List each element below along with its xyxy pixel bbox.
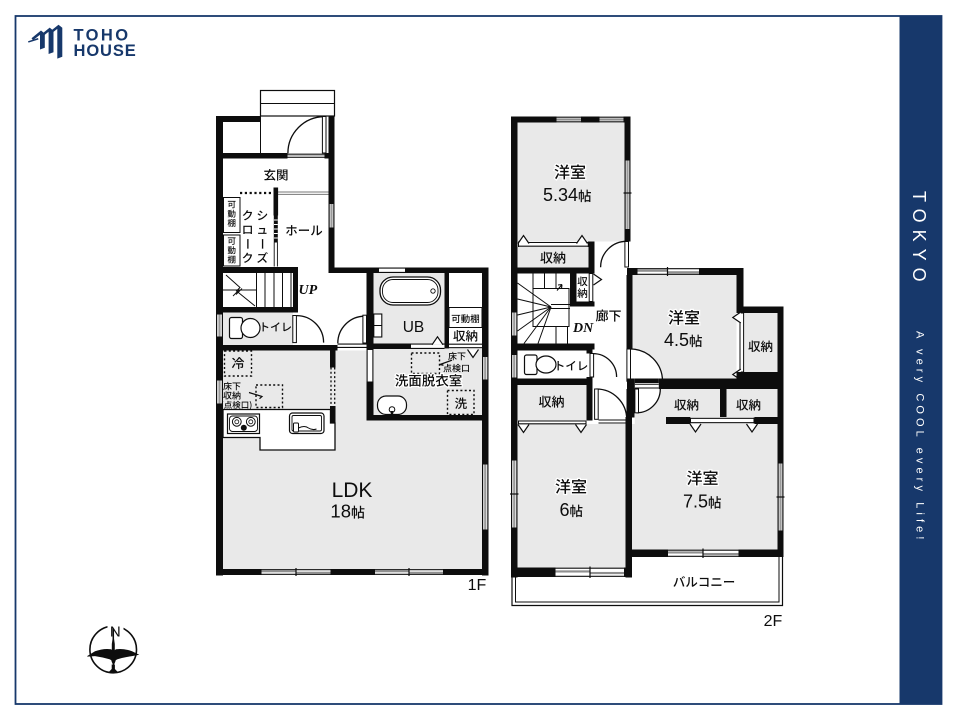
svg-text:A very COOL every Life!: A very COOL every Life! <box>914 331 926 544</box>
svg-text:2F: 2F <box>764 613 783 630</box>
svg-text:UP: UP <box>299 283 318 298</box>
svg-text:N: N <box>110 624 121 641</box>
svg-text:DN: DN <box>572 321 594 336</box>
svg-text:4.5: 4.5 <box>664 330 689 350</box>
svg-text:1F: 1F <box>468 577 487 594</box>
svg-text:HOUSE: HOUSE <box>74 42 137 60</box>
svg-text:18: 18 <box>330 501 351 522</box>
svg-text:5.34: 5.34 <box>543 185 578 205</box>
svg-text:TOKYO: TOKYO <box>909 191 929 289</box>
svg-text:UB: UB <box>403 319 425 336</box>
svg-text:LDK: LDK <box>332 479 373 502</box>
svg-text:6: 6 <box>559 500 569 520</box>
svg-text:7.5: 7.5 <box>683 492 708 512</box>
